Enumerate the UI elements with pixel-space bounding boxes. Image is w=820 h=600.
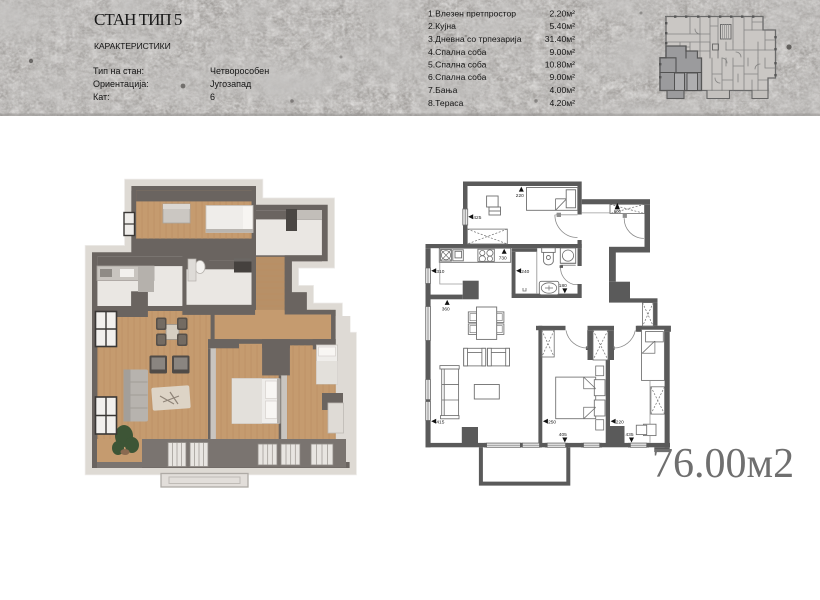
svg-text:4.00м²: 4.00м² — [550, 85, 576, 95]
svg-text:2.Кујна: 2.Кујна — [428, 21, 456, 31]
svg-text:9.00м²: 9.00м² — [550, 72, 576, 82]
svg-text:10.80м²: 10.80м² — [545, 60, 575, 70]
svg-text:180: 180 — [559, 283, 567, 289]
svg-text:Кат:: Кат: — [93, 92, 110, 102]
svg-text:415: 415 — [436, 419, 444, 425]
svg-text:600: 600 — [614, 209, 622, 214]
svg-text:4.Спална соба: 4.Спална соба — [428, 47, 487, 57]
svg-text:76.00м2: 76.00м2 — [652, 441, 794, 487]
svg-text:СТАН ТИП 5: СТАН ТИП 5 — [94, 10, 182, 29]
svg-text:31.40м²: 31.40м² — [545, 34, 575, 44]
svg-text:Тип на стан:: Тип на стан: — [93, 66, 144, 76]
svg-text:1.Влезен претпростор: 1.Влезен претпростор — [428, 9, 516, 19]
svg-text:9.00м²: 9.00м² — [550, 47, 576, 57]
svg-text:КАРАКТЕРИСТИКИ: КАРАКТЕРИСТИКИ — [94, 41, 171, 51]
svg-text:5.40м²: 5.40м² — [550, 21, 576, 31]
svg-text:220: 220 — [516, 193, 524, 199]
svg-text:5.Спална соба: 5.Спална соба — [428, 60, 487, 70]
svg-text:425: 425 — [473, 215, 481, 221]
svg-text:405: 405 — [559, 432, 567, 438]
svg-text:360: 360 — [442, 306, 450, 312]
svg-text:8.Тераса: 8.Тераса — [428, 98, 464, 108]
svg-text:3.Дневна со трпезарија: 3.Дневна со трпезарија — [428, 34, 522, 44]
svg-text:4.20м²: 4.20м² — [550, 98, 576, 108]
svg-text:220: 220 — [616, 419, 624, 425]
svg-text:240: 240 — [521, 269, 529, 275]
svg-text:Четворособен: Четворособен — [210, 66, 269, 76]
svg-text:310: 310 — [436, 269, 444, 275]
svg-text:2.20м²: 2.20м² — [550, 9, 576, 19]
svg-text:Југозапад: Југозапад — [210, 79, 252, 89]
svg-text:6.Спална соба: 6.Спална соба — [428, 72, 487, 82]
svg-text:730: 730 — [499, 255, 507, 261]
svg-text:6: 6 — [210, 92, 215, 102]
svg-text:435: 435 — [626, 432, 634, 438]
svg-text:Ориентација:: Ориентација: — [93, 79, 149, 89]
svg-text:250: 250 — [548, 419, 556, 425]
svg-text:7.Бања: 7.Бања — [428, 85, 458, 95]
